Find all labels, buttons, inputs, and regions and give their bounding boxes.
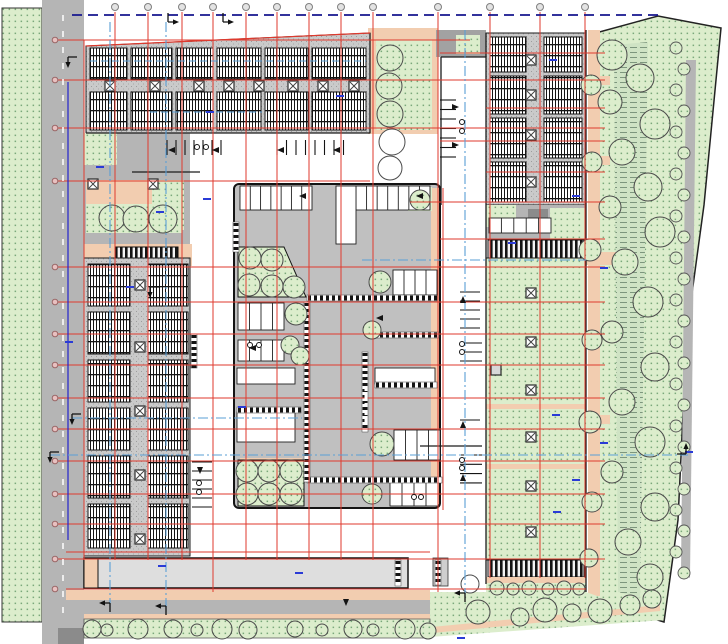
grid-dot [52,37,58,43]
bush [678,399,690,411]
bush [670,42,682,54]
comb-tooth [314,478,317,483]
bollard [204,145,209,150]
comb-tooth [192,335,197,338]
grid-dot [52,331,58,337]
comb-tooth [424,383,427,388]
bush [670,546,682,558]
bollard [460,458,465,463]
bollard [197,481,202,486]
left-verge [2,8,42,622]
tree [609,389,635,415]
comb-tooth [428,478,431,483]
comb-tooth [344,296,347,301]
parking-row [375,368,435,384]
comb-tooth [416,296,419,301]
grid-dot [52,178,58,184]
comb-tooth [234,229,239,232]
comb-tooth [398,333,401,338]
carport-module [90,48,127,79]
tree [641,493,669,521]
comb-tooth [368,478,371,483]
comb-tooth [406,383,409,388]
comb-tooth [394,383,397,388]
comb-tooth [434,478,437,483]
tree [601,461,623,483]
tree [212,619,232,639]
top-right-green [456,35,480,54]
tree [466,600,490,624]
bush [670,252,682,264]
tree [598,90,622,114]
tree [395,619,415,639]
tree [191,624,203,636]
bollard [197,490,202,495]
bush [678,231,690,243]
carport-module [312,48,366,79]
tree [280,460,302,482]
bollard [460,350,465,355]
tree [283,276,305,298]
comb-tooth [356,296,359,301]
bush [670,336,682,348]
parking-row [240,186,312,210]
carport-module [88,456,130,498]
grid-bubble [243,4,250,11]
bush [670,378,682,390]
grid-bubble [145,4,152,11]
grid-dot [52,77,58,83]
comb-tooth [416,333,419,338]
comb-tooth [256,408,259,413]
tree [579,411,601,433]
bush [670,504,682,516]
bollard [460,120,465,125]
tree [239,247,261,269]
comb-tooth [250,408,253,413]
tree [239,621,257,639]
carport-module [490,162,526,202]
bush [670,168,682,180]
bush [678,567,690,579]
comb-tooth [292,408,295,413]
comb-tooth [404,333,407,338]
court-path-2 [486,464,586,469]
grid-bubble [537,4,544,11]
comb-tooth [192,347,197,350]
carport-module [544,37,582,72]
comb-tooth [363,371,368,374]
parking-row [489,218,551,233]
tree [370,432,394,456]
bollard [460,466,465,471]
bollard [248,343,253,348]
grid-bubble [338,4,345,11]
comb-tooth [422,296,425,301]
tree [581,75,601,95]
tree [557,581,571,595]
bush [678,147,690,159]
bush [670,126,682,138]
comb-tooth [363,353,368,356]
bottom-left-block [58,628,84,644]
bush [678,483,690,495]
tree [377,45,403,71]
grid-dot [52,125,58,131]
grid-dot [52,264,58,270]
tree [609,139,635,165]
grid-bubble [370,4,377,11]
tree [285,303,307,325]
tree [615,529,641,555]
carport-module [490,37,526,72]
carport-module [312,92,366,130]
bush [670,294,682,306]
comb-tooth [376,383,379,388]
carport-module [265,92,308,130]
tree [620,595,640,615]
south-salmon [66,590,430,600]
comb-tooth [396,573,401,576]
tree-outline [379,129,405,155]
comb-tooth [326,478,329,483]
comb-tooth [298,408,301,413]
tree [369,271,391,293]
grid-bubble [487,4,494,11]
bollard [195,145,200,150]
grid-dot [52,521,58,527]
bush [670,420,682,432]
tree [377,101,403,127]
tree [376,73,402,99]
comb-tooth [268,408,271,413]
comb-tooth [410,296,413,301]
comb-tooth [234,247,239,250]
tree [645,217,675,247]
comb-tooth [234,235,239,238]
grid-bubble [112,4,119,11]
comb-tooth [386,333,389,338]
site-plan-canvas [0,0,728,644]
comb-strip [191,334,197,368]
tree [522,581,536,595]
grid-dot [52,395,58,401]
tree [410,190,430,210]
tree [579,239,601,261]
court-path-1 [486,404,586,409]
comb-tooth [386,296,389,301]
grid-dot [52,556,58,562]
tree [367,624,379,636]
tree [101,624,113,636]
tree [363,321,381,339]
grid-bubble [582,4,589,11]
tree [236,460,258,482]
grid-bubble [435,4,442,11]
comb-tooth [363,377,368,380]
small-box-marker [491,365,501,375]
comb-tooth [238,408,241,413]
grid-dot [52,458,58,464]
tree [641,353,669,381]
tree [316,624,328,636]
tree [123,206,149,232]
comb-tooth [192,353,197,356]
comb-tooth [392,478,395,483]
comb-tooth [380,478,383,483]
comb-tooth [416,478,419,483]
carport-module [88,504,130,548]
comb-tooth [396,567,401,570]
comb-tooth [386,478,389,483]
comb-tooth [332,478,335,483]
tree [533,598,557,622]
comb-tooth [374,296,377,301]
bush [670,210,682,222]
grid-bubble [306,4,313,11]
tree [287,621,303,637]
tree-outline [378,156,402,180]
bush [670,84,682,96]
comb-tooth [400,383,403,388]
comb-tooth [422,333,425,338]
carport-module [265,48,308,79]
comb-tooth [363,407,368,410]
comb-tooth [332,296,335,301]
tree [640,109,670,139]
comb-tooth [344,478,347,483]
tree [420,623,436,639]
tree [344,620,362,638]
tree [261,249,283,271]
nw-court-green-1 [84,133,117,165]
tree [149,205,177,233]
comb-tooth [396,579,401,582]
comb-tooth [396,561,401,564]
carport-module [544,118,582,158]
direction-arrow [277,147,284,153]
tree [633,287,663,317]
comb-tooth [326,296,329,301]
carport-module [490,118,526,158]
south-building-cap [84,558,98,588]
comb-tooth [286,408,289,413]
tree [588,599,612,623]
tree [626,64,654,92]
comb-tooth [404,478,407,483]
comb-tooth [412,383,415,388]
pergola-north [488,240,584,258]
tree [637,564,663,590]
tree [511,608,529,626]
comb-tooth [363,425,368,428]
comb-tooth [404,296,407,301]
carport-module [90,92,127,130]
grid-bubble [179,4,186,11]
comb-tooth [398,478,401,483]
bollard [460,342,465,347]
bush [678,63,690,75]
comb-tooth [356,478,359,483]
tree [612,249,638,275]
comb-tooth [410,333,413,338]
carport-module [88,264,130,306]
tree [635,427,665,457]
direction-arrow [460,296,466,303]
comb-tooth [388,383,391,388]
grid-dot [52,299,58,305]
comb-tooth [234,223,239,226]
tree [99,205,125,231]
comb-tooth [350,478,353,483]
comb-tooth [380,296,383,301]
pergola-south [488,560,584,577]
grid-bubble [210,4,217,11]
tree-outline [461,575,479,593]
comb-tooth [363,359,368,362]
tree [634,173,662,201]
comb-tooth [320,478,323,483]
grid-dot [52,491,58,497]
bush [678,189,690,201]
comb-tooth [398,296,401,301]
tree [83,620,101,638]
carport-module [88,312,130,354]
comb-tooth [363,383,368,386]
hedge-salmon [84,614,430,619]
tree [490,581,504,595]
bollard [460,129,465,134]
right-mid-green-2 [550,208,586,240]
comb-tooth [434,296,437,301]
comb-tooth [418,383,421,388]
tree [128,619,148,639]
comb-tooth [428,333,431,338]
tree [597,40,627,70]
bush [678,357,690,369]
bush [678,105,690,117]
carport-module [217,48,261,79]
bollard [412,495,417,500]
comb-tooth [192,359,197,362]
comb-tooth [362,296,365,301]
comb-tooth [368,296,371,301]
comb-tooth [362,478,365,483]
tree [599,196,621,218]
comb-tooth [314,296,317,301]
bush [678,273,690,285]
comb-tooth [434,333,437,338]
comb-tooth [382,383,385,388]
bollard [419,495,424,500]
site-plan-svg [0,0,728,644]
grid-bubble [274,4,281,11]
comb-tooth [192,341,197,344]
comb-tooth [280,408,283,413]
grid-dot [52,362,58,368]
bush [678,315,690,327]
comb-tooth [262,408,265,413]
comb-tooth [392,333,395,338]
comb-tooth [350,296,353,301]
carport-module [88,360,130,402]
tree [164,620,182,638]
comb-tooth [392,296,395,301]
tree [291,347,309,365]
grid-dot [52,426,58,432]
comb-tooth [320,296,323,301]
tree [563,604,581,622]
bollard [257,343,262,348]
comb-tooth [428,296,431,301]
comb-tooth [374,478,377,483]
bush [670,462,682,474]
comb-tooth [430,383,433,388]
tree [643,590,661,608]
bush [678,525,690,537]
grid-dot [52,586,58,592]
tree [261,275,283,297]
south-building [84,558,408,588]
carport-module [217,92,261,130]
tree [238,274,260,296]
parking-row [336,186,356,244]
comb-tooth [410,478,413,483]
comb-tooth [234,241,239,244]
tree [601,321,623,343]
comb-tooth [422,478,425,483]
tree [580,549,598,567]
